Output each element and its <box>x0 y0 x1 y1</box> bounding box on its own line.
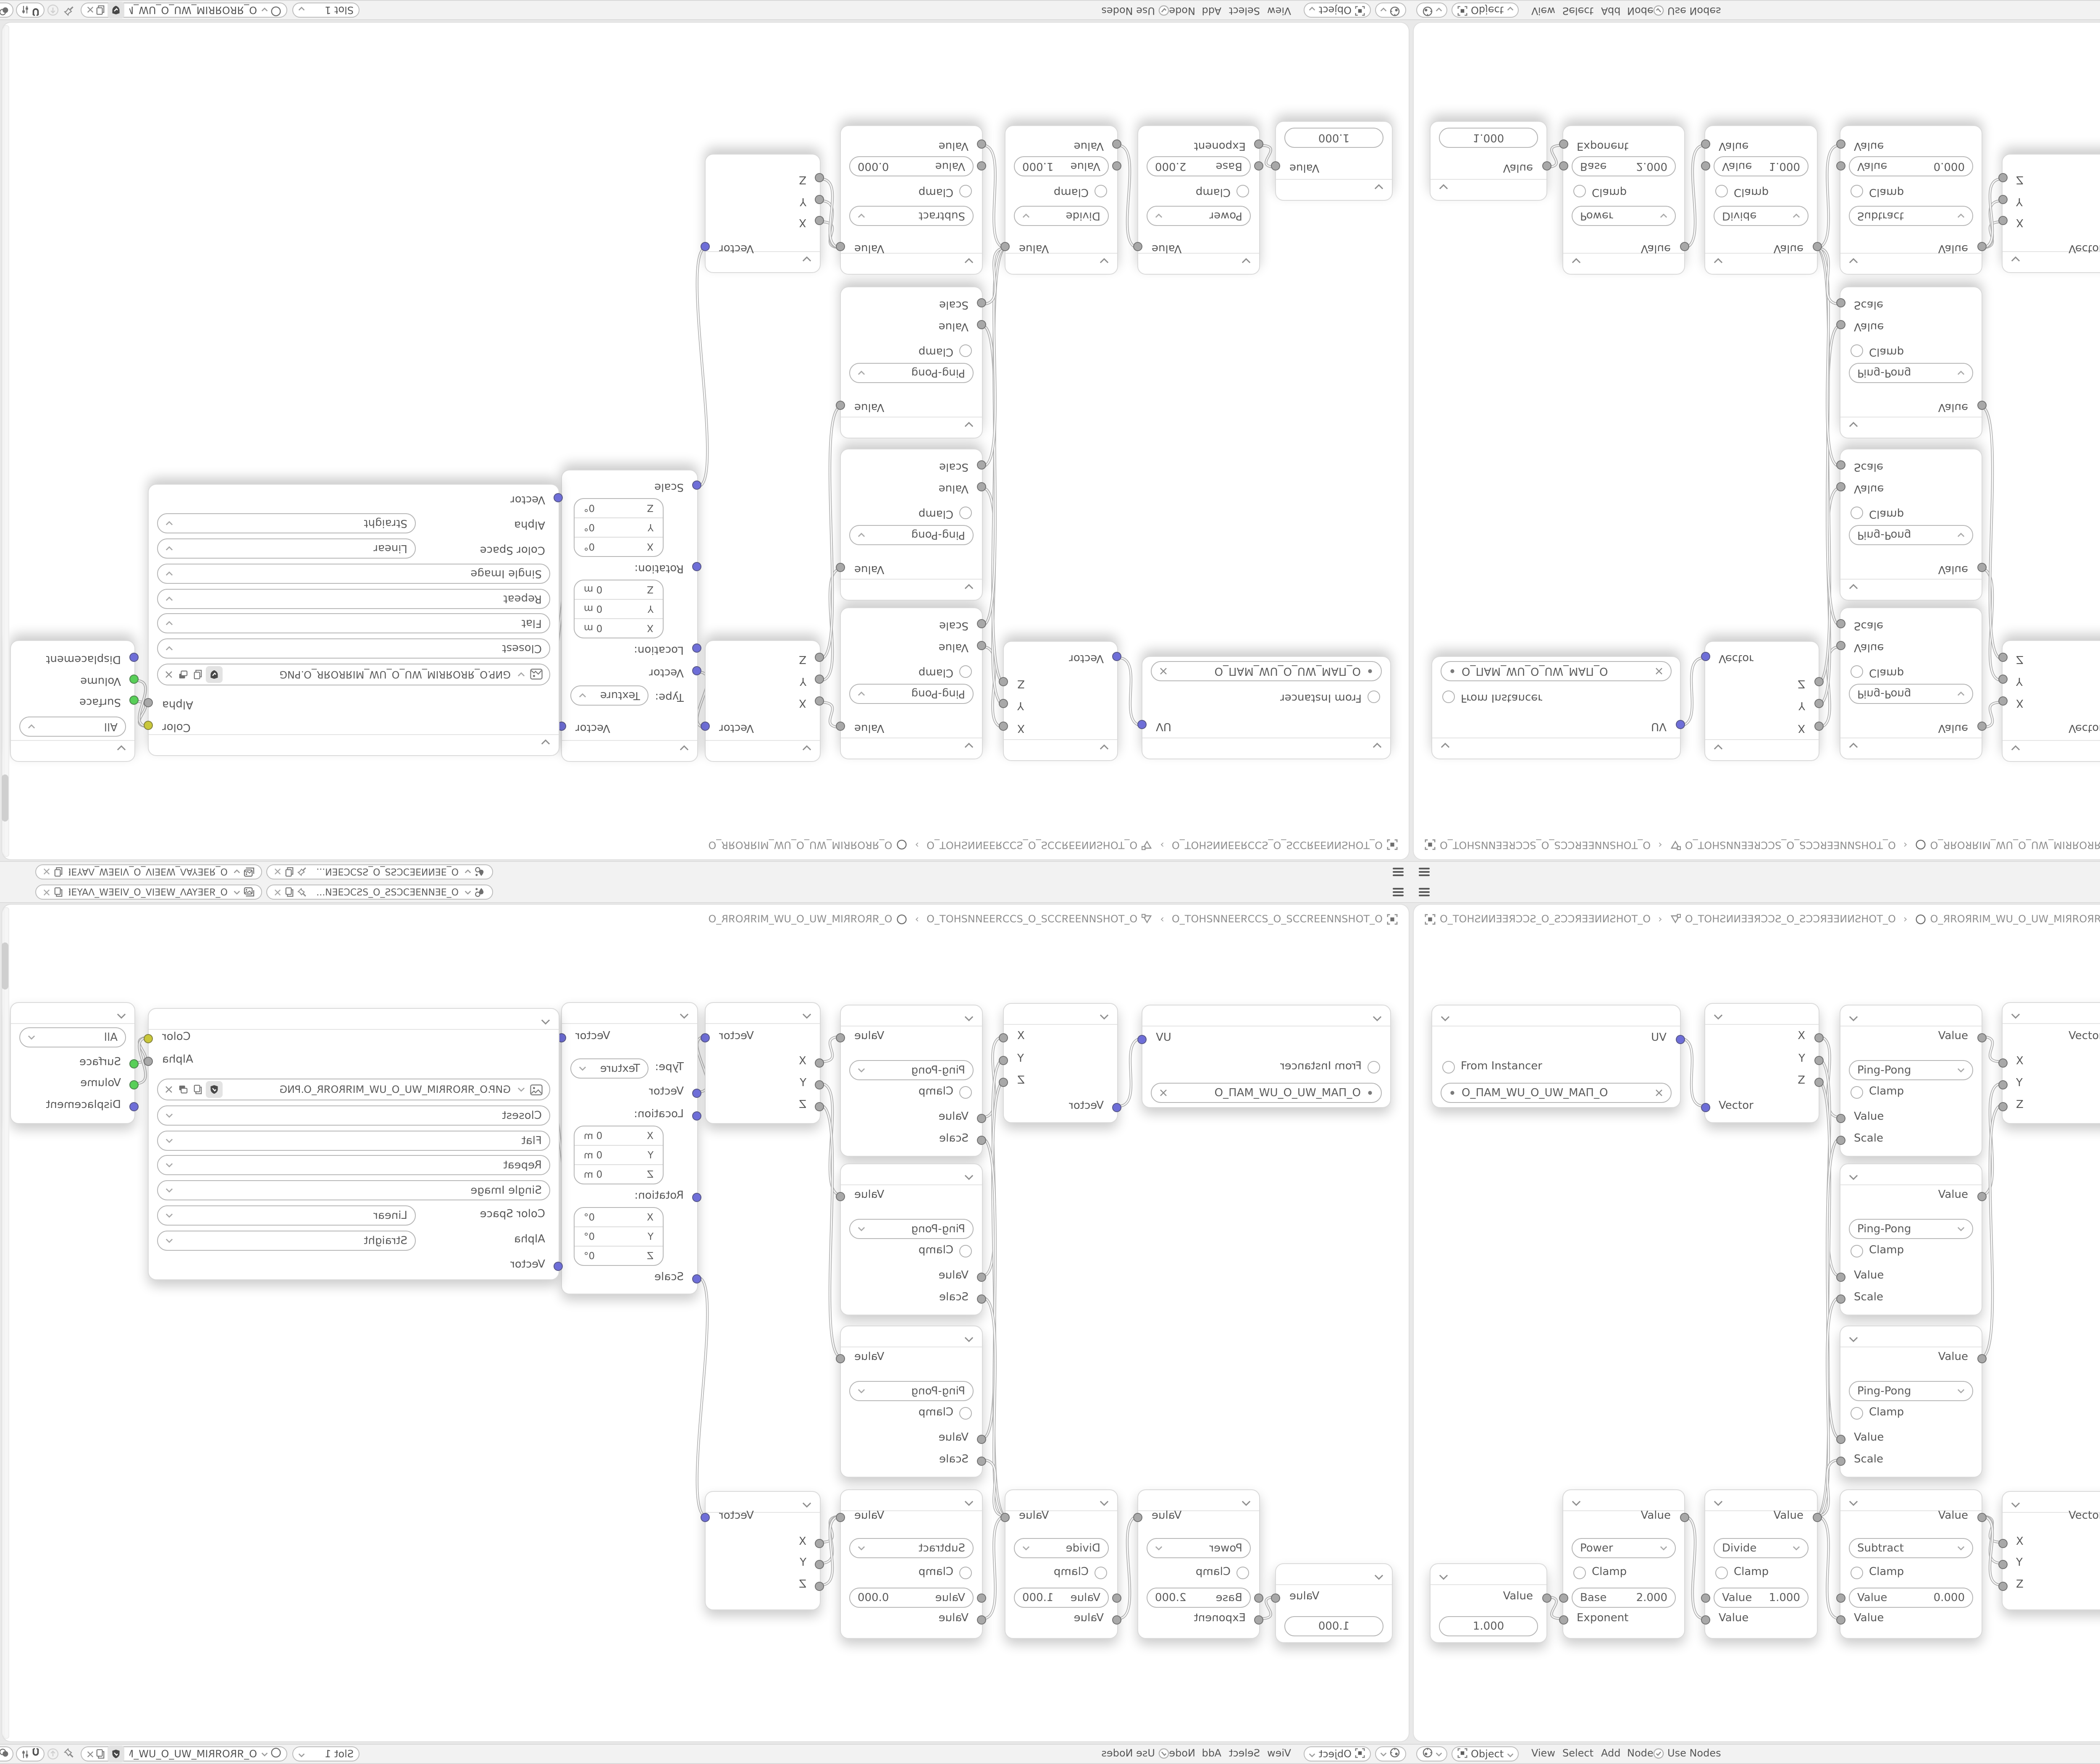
triple-row[interactable]: X0 m <box>575 619 663 638</box>
socket-vector[interactable] <box>701 1033 710 1042</box>
node-header[interactable] <box>1004 739 1117 760</box>
socket-value[interactable] <box>836 1354 845 1363</box>
prop-dropdown[interactable]: Texture <box>570 1058 648 1079</box>
dropdown-ping-pong[interactable]: Ping-Pong <box>1849 1381 1973 1401</box>
socket-y[interactable] <box>815 675 824 684</box>
collapse-chevron-icon[interactable] <box>1714 255 1723 267</box>
uv-map-name-field[interactable]: O_ΠAM_WU_O_UW_MAΠ_O <box>1441 1083 1672 1103</box>
socket-z[interactable] <box>1998 173 2007 183</box>
dropdown-closest[interactable]: Closest <box>157 638 550 659</box>
number-field[interactable]: Base2.000 <box>1147 156 1251 176</box>
collapse-chevron-icon[interactable] <box>1849 418 1858 431</box>
radio-checkbox[interactable] <box>1236 185 1249 197</box>
socket-z[interactable] <box>815 173 824 183</box>
collapse-chevron-icon[interactable] <box>964 1171 974 1184</box>
collapse-chevron-icon[interactable] <box>1572 255 1581 267</box>
menu-select[interactable]: Select <box>1229 5 1260 17</box>
socket-surface[interactable] <box>130 1059 139 1068</box>
dropdown-all[interactable]: All <box>19 1027 126 1047</box>
socket-exponent[interactable] <box>1255 1615 1264 1624</box>
radio-checkbox[interactable] <box>1851 507 1863 519</box>
collapse-chevron-icon[interactable] <box>1849 1171 1858 1184</box>
fake-user-shield-icon[interactable] <box>108 2 124 18</box>
collapse-chevron-icon[interactable] <box>1242 255 1251 267</box>
socket-value[interactable] <box>836 563 845 572</box>
node-header[interactable] <box>2003 740 2100 761</box>
number-field[interactable]: 1.000 <box>1439 128 1538 148</box>
socket-value[interactable] <box>977 1113 987 1123</box>
pin-icon[interactable] <box>64 1748 74 1758</box>
menu-add[interactable]: Add <box>1202 1747 1221 1759</box>
node-header[interactable] <box>562 740 697 761</box>
number-field[interactable]: Value0.000 <box>849 1588 974 1608</box>
socket-value[interactable] <box>977 1272 987 1281</box>
socket-x[interactable] <box>999 1033 1008 1042</box>
radio-checkbox[interactable] <box>1442 1061 1455 1074</box>
socket-value[interactable] <box>1134 1512 1143 1522</box>
dropdown-divide[interactable]: Divide <box>1014 206 1109 226</box>
socket-value[interactable] <box>1977 722 1986 731</box>
socket-value[interactable] <box>1977 1033 1986 1042</box>
prop-dropdown[interactable]: Linear <box>157 1205 416 1226</box>
node-value[interactable]: Value1.000 <box>1430 1563 1547 1643</box>
radio-checkbox[interactable] <box>1095 185 1107 197</box>
node-uv-map[interactable]: UVFrom InstancerO_ΠAM_WU_O_UW_MAΠ_O <box>1431 1005 1681 1108</box>
sidebar-toggle[interactable] <box>2 942 8 990</box>
node-header[interactable] <box>706 740 820 761</box>
socket-value[interactable] <box>1836 641 1845 651</box>
socket-rotation:[interactable] <box>693 1192 702 1202</box>
node-header[interactable] <box>1563 1490 1684 1511</box>
socket-value[interactable] <box>1542 162 1551 171</box>
slot-selector[interactable]: Slot 1 <box>292 3 360 18</box>
menu-view[interactable]: View <box>1531 5 1555 17</box>
socket-base[interactable] <box>1559 1593 1568 1602</box>
socket-y[interactable] <box>1998 1559 2007 1569</box>
node-math-ping-pong-1[interactable]: ValuePing-PongClampValueScale <box>840 1005 983 1157</box>
collapse-chevron-icon[interactable] <box>964 1012 974 1025</box>
collapse-chevron-icon[interactable] <box>1849 580 1858 593</box>
node-math-divide[interactable]: ValueDivideClampValue1.000Value <box>1704 125 1818 275</box>
socket-y[interactable] <box>1998 1080 2007 1089</box>
node-math-ping-pong-3[interactable]: ValuePing-PongClampValueScale <box>840 1326 983 1478</box>
socket-value[interactable] <box>1977 563 1986 572</box>
socket-value[interactable] <box>1836 140 1845 149</box>
pin-icon[interactable] <box>64 6 74 16</box>
use-nodes-checkbox[interactable]: Use Nodes <box>1101 5 1169 17</box>
socket-value[interactable] <box>1836 1615 1845 1624</box>
node-header[interactable] <box>1276 1564 1392 1585</box>
image-datablock-field[interactable]: GИP.O_ЯROЯRIM_WU_O_UW_MIЯROЯR_O.PNG <box>157 664 550 685</box>
node-combine-xyz-2[interactable]: VectorXYZ <box>2002 154 2100 273</box>
socket-z[interactable] <box>1814 1077 1823 1087</box>
socket-y[interactable] <box>1814 1055 1823 1065</box>
collapse-chevron-icon[interactable] <box>1849 1333 1858 1346</box>
copy-icon[interactable] <box>191 1084 205 1095</box>
node-header[interactable] <box>149 734 559 755</box>
socket-x[interactable] <box>1998 216 2007 226</box>
collapse-chevron-icon[interactable] <box>2011 253 2020 265</box>
menu-node[interactable]: Node <box>1627 5 1654 17</box>
node-math-power[interactable]: ValuePowerClampBase2.000Exponent <box>1137 1489 1260 1639</box>
node-header[interactable] <box>149 1009 559 1030</box>
socket-vector[interactable] <box>1701 1102 1710 1112</box>
socket-value[interactable] <box>1113 1593 1122 1602</box>
socket-x[interactable] <box>1998 1058 2007 1067</box>
dropdown-subtract[interactable]: Subtract <box>1849 1538 1973 1558</box>
dropdown-repeat[interactable]: Repeat <box>157 1155 550 1175</box>
node-separate-xyz[interactable]: XYZVector <box>1704 641 1819 761</box>
node-header[interactable] <box>1840 1005 1982 1026</box>
socket-value[interactable] <box>1113 162 1122 171</box>
socket-exponent[interactable] <box>1559 1615 1568 1624</box>
socket-value[interactable] <box>1977 242 1986 252</box>
socket-value[interactable] <box>1836 1272 1845 1281</box>
close-icon[interactable] <box>162 1085 176 1094</box>
collapse-chevron-icon[interactable] <box>1714 1497 1723 1509</box>
node-math-divide[interactable]: ValueDivideClampValue1.000Value <box>1005 1489 1118 1639</box>
collapse-chevron-icon[interactable] <box>1849 739 1858 752</box>
collapse-chevron-icon[interactable] <box>1100 741 1109 753</box>
socket-y[interactable] <box>815 195 824 205</box>
dropdown-power[interactable]: Power <box>1147 206 1251 226</box>
node-mapping[interactable]: VectorType:TextureVectorLocation:X0 mY0 … <box>561 470 698 762</box>
radio-checkbox[interactable] <box>1368 690 1380 703</box>
object-mode-selector[interactable]: Object <box>1304 3 1371 18</box>
node-header[interactable] <box>1840 417 1982 438</box>
up-arrow-icon[interactable] <box>47 1748 59 1760</box>
menu-node[interactable]: Node <box>1169 1747 1195 1759</box>
node-combine-xyz-2[interactable]: VectorXYZ <box>705 1491 821 1610</box>
socket-y[interactable] <box>1814 699 1823 709</box>
socket-scale[interactable] <box>1836 1294 1845 1303</box>
socket-volume[interactable] <box>130 675 139 684</box>
node-combine-xyz-1[interactable]: VectorXYZ <box>2002 640 2100 762</box>
object-mode-selector[interactable]: Object <box>1304 1746 1371 1761</box>
node-material-output[interactable]: AllSurfaceVolumeDisplacement <box>10 640 135 762</box>
dropdown-flat[interactable]: Flat <box>157 1131 550 1151</box>
node-math-ping-pong-3[interactable]: ValuePing-PongClampValueScale <box>1840 286 1982 438</box>
socket-uv[interactable] <box>1138 720 1147 730</box>
collapse-chevron-icon[interactable] <box>1100 1011 1109 1023</box>
node-header[interactable] <box>841 1326 982 1347</box>
dropdown-ping-pong[interactable]: Ping-Pong <box>849 525 974 545</box>
socket-value[interactable] <box>1542 1593 1551 1602</box>
socket-value[interactable] <box>836 1033 845 1042</box>
socket-z[interactable] <box>815 653 824 662</box>
dropdown-ping-pong[interactable]: Ping-Pong <box>849 363 974 383</box>
number-field[interactable]: 1.000 <box>1439 1616 1538 1636</box>
menu-add[interactable]: Add <box>1601 5 1620 17</box>
node-math-ping-pong-3[interactable]: ValuePing-PongClampValueScale <box>840 286 983 438</box>
node-combine-xyz-2[interactable]: VectorXYZ <box>2002 1491 2100 1610</box>
socket-z[interactable] <box>1998 1581 2007 1591</box>
node-combine-xyz-1[interactable]: VectorXYZ <box>705 1002 821 1124</box>
node-header[interactable] <box>841 417 982 438</box>
socket-vector[interactable] <box>1701 652 1710 661</box>
socket-base[interactable] <box>1559 162 1568 171</box>
menu-select[interactable]: Select <box>1229 1747 1260 1759</box>
socket-value[interactable] <box>1113 140 1122 149</box>
collapse-chevron-icon[interactable] <box>1441 1012 1450 1025</box>
collapse-chevron-icon[interactable] <box>1849 255 1858 267</box>
dropdown-repeat[interactable]: Repeat <box>157 589 550 609</box>
image-datablock-field[interactable]: GИP.O_ЯROЯRIM_WU_O_UW_MIЯROЯR_O.PNG <box>157 1079 550 1100</box>
dropdown-ping-pong[interactable]: Ping-Pong <box>1849 363 1973 383</box>
node-separate-xyz[interactable]: XYZVector <box>1704 1003 1819 1123</box>
node-header[interactable] <box>1432 1005 1680 1026</box>
triple-row[interactable]: Z0° <box>575 1246 663 1265</box>
triple-row[interactable]: Y0° <box>575 1226 663 1246</box>
node-header[interactable] <box>841 738 982 759</box>
socket-value[interactable] <box>1001 242 1010 252</box>
dropdown-flat[interactable]: Flat <box>157 613 550 633</box>
socket-z[interactable] <box>1998 653 2007 662</box>
node-value[interactable]: Value1.000 <box>1275 121 1393 201</box>
socket-value[interactable] <box>1680 242 1689 252</box>
socket-location:[interactable] <box>693 1111 702 1120</box>
radio-checkbox[interactable] <box>1095 1567 1107 1579</box>
uv-map-name-field[interactable]: O_ΠAM_WU_O_UW_MAΠ_O <box>1441 661 1672 681</box>
copy-icon[interactable] <box>96 1749 105 1759</box>
socket-z[interactable] <box>815 1581 824 1591</box>
node-header[interactable] <box>1431 1564 1546 1585</box>
radio-checkbox[interactable] <box>1851 1407 1863 1420</box>
slot-selector[interactable]: Slot 1 <box>292 1746 360 1761</box>
collapse-chevron-icon[interactable] <box>1374 1571 1383 1583</box>
collapse-chevron-icon[interactable] <box>1374 181 1383 193</box>
collapse-chevron-icon[interactable] <box>680 1010 689 1022</box>
dropdown-subtract[interactable]: Subtract <box>1849 206 1973 226</box>
collapse-chevron-icon[interactable] <box>541 1016 550 1028</box>
socket-volume[interactable] <box>130 1080 139 1089</box>
number-field[interactable]: 1.000 <box>1284 1616 1383 1636</box>
radio-checkbox[interactable] <box>959 1407 972 1420</box>
triple-row[interactable]: Y0° <box>575 518 663 538</box>
node-math-ping-pong-1[interactable]: ValuePing-PongClampValueScale <box>840 607 983 759</box>
number-field[interactable]: Value1.000 <box>1014 1588 1109 1608</box>
socket-value[interactable] <box>1836 1434 1845 1444</box>
node-math-subtract[interactable]: ValueSubtractClampValue0.000Value <box>1840 125 1982 275</box>
editor-type-button[interactable] <box>1375 3 1406 18</box>
socket-value[interactable] <box>1701 1593 1710 1602</box>
node-header[interactable] <box>1138 253 1259 274</box>
socket-value[interactable] <box>977 641 987 651</box>
triple-row[interactable]: Y0 m <box>575 1145 663 1164</box>
unpack-icon[interactable] <box>176 669 191 680</box>
uv-map-name-field[interactable]: O_ΠAM_WU_O_UW_MAΠ_O <box>1151 1083 1382 1103</box>
socket-value[interactable] <box>1836 320 1845 330</box>
close-icon[interactable] <box>1159 1089 1168 1097</box>
socket-value[interactable] <box>1836 162 1845 171</box>
number-field[interactable]: Base2.000 <box>1147 1588 1251 1608</box>
socket-value[interactable] <box>1977 401 1986 410</box>
socket-value[interactable] <box>1812 242 1822 252</box>
socket-x[interactable] <box>815 697 824 706</box>
socket-value[interactable] <box>1701 1615 1710 1624</box>
close-icon[interactable] <box>87 1750 94 1758</box>
socket-scale[interactable] <box>1836 299 1845 308</box>
radio-checkbox[interactable] <box>1573 185 1586 197</box>
dropdown-closest[interactable]: Closest <box>157 1105 550 1126</box>
dropdown-all[interactable]: All <box>19 717 126 737</box>
radio-checkbox[interactable] <box>959 1567 972 1579</box>
socket-rotation:[interactable] <box>693 562 702 572</box>
node-math-subtract[interactable]: ValueSubtractClampValue0.000Value <box>840 125 983 275</box>
radio-checkbox[interactable] <box>959 507 972 519</box>
node-math-ping-pong-3[interactable]: ValuePing-PongClampValueScale <box>1840 1326 1982 1478</box>
number-field[interactable]: Base2.000 <box>1572 1588 1676 1608</box>
overlays-toggle[interactable] <box>0 3 13 18</box>
socket-y[interactable] <box>815 1559 824 1569</box>
socket-exponent[interactable] <box>1559 140 1568 149</box>
socket-vector[interactable] <box>1113 652 1122 661</box>
radio-checkbox[interactable] <box>1851 1086 1863 1099</box>
node-combine-xyz-1[interactable]: VectorXYZ <box>2002 1002 2100 1124</box>
vector-triple-field[interactable]: X0°Y0°Z0° <box>574 498 664 557</box>
node-header[interactable] <box>1705 253 1817 274</box>
socket-z[interactable] <box>999 1077 1008 1087</box>
number-field[interactable]: Base2.000 <box>1572 156 1676 176</box>
collapse-chevron-icon[interactable] <box>1714 1011 1723 1023</box>
close-icon[interactable] <box>1159 667 1168 675</box>
node-math-ping-pong-2[interactable]: ValuePing-PongClampValueScale <box>840 1163 983 1315</box>
triple-row[interactable]: Z0° <box>575 499 663 518</box>
socket-x[interactable] <box>999 722 1008 731</box>
socket-value[interactable] <box>836 242 845 252</box>
uv-map-name-field[interactable]: O_ΠAM_WU_O_UW_MAΠ_O <box>1151 661 1382 681</box>
node-header[interactable] <box>11 740 134 761</box>
menu-select[interactable]: Select <box>1562 1747 1593 1759</box>
socket-value[interactable] <box>1836 1593 1845 1602</box>
collapse-chevron-icon[interactable] <box>2011 1499 2020 1511</box>
collapse-chevron-icon[interactable] <box>1100 1497 1109 1509</box>
socket-x[interactable] <box>1814 1033 1823 1042</box>
socket-value[interactable] <box>1977 1354 1986 1363</box>
vector-triple-field[interactable]: X0 mY0 mZ0 m <box>574 1126 664 1184</box>
node-math-ping-pong-1[interactable]: ValuePing-PongClampValueScale <box>1840 607 1982 759</box>
socket-vector[interactable] <box>701 1512 710 1522</box>
node-math-subtract[interactable]: ValueSubtractClampValue0.000Value <box>1840 1489 1982 1639</box>
socket-scale[interactable] <box>977 619 987 629</box>
socket-vector[interactable] <box>693 667 702 676</box>
node-math-power[interactable]: ValuePowerClampBase2.000Exponent <box>1562 125 1685 275</box>
socket-scale[interactable] <box>977 1135 987 1144</box>
node-header[interactable] <box>11 1003 134 1024</box>
menu-select[interactable]: Select <box>1562 5 1593 17</box>
socket-value[interactable] <box>977 1434 987 1444</box>
close-icon[interactable] <box>162 670 176 679</box>
node-header[interactable] <box>1142 738 1390 759</box>
prop-dropdown[interactable]: Linear <box>157 538 416 559</box>
socket-y[interactable] <box>999 1055 1008 1065</box>
collapse-chevron-icon[interactable] <box>964 1333 974 1346</box>
socket-surface[interactable] <box>130 696 139 705</box>
node-mapping[interactable]: VectorType:TextureVectorLocation:X0 mY0 … <box>561 1002 698 1294</box>
collapse-chevron-icon[interactable] <box>964 1497 974 1509</box>
node-header[interactable] <box>1705 739 1819 760</box>
socket-vector[interactable] <box>701 722 710 731</box>
socket-scale[interactable] <box>977 299 987 308</box>
socket-alpha[interactable] <box>144 698 153 708</box>
socket-base[interactable] <box>1255 162 1264 171</box>
radio-checkbox[interactable] <box>1851 1245 1863 1257</box>
dropdown-ping-pong[interactable]: Ping-Pong <box>849 684 974 704</box>
node-header[interactable] <box>1138 1490 1259 1511</box>
collapse-chevron-icon[interactable] <box>1242 1497 1251 1509</box>
collapse-chevron-icon[interactable] <box>1373 739 1382 752</box>
node-separate-xyz[interactable]: XYZVector <box>1003 641 1118 761</box>
radio-checkbox[interactable] <box>1236 1567 1249 1579</box>
socket-value[interactable] <box>1836 483 1845 492</box>
menu-node[interactable]: Node <box>1169 5 1195 17</box>
menu-add[interactable]: Add <box>1601 1747 1620 1759</box>
dropdown-ping-pong[interactable]: Ping-Pong <box>849 1381 974 1401</box>
socket-z[interactable] <box>1998 1102 2007 1111</box>
radio-checkbox[interactable] <box>959 665 972 678</box>
socket-scale[interactable] <box>1836 1456 1845 1465</box>
node-header[interactable] <box>1005 253 1117 274</box>
socket-exponent[interactable] <box>1255 140 1264 149</box>
node-uv-map[interactable]: UVFrom InstancerO_ΠAM_WU_O_UW_MAΠ_O <box>1142 1005 1391 1108</box>
socket-value[interactable] <box>1977 1512 1986 1522</box>
socket-color[interactable] <box>144 1034 153 1043</box>
collapse-chevron-icon[interactable] <box>117 742 126 754</box>
triple-row[interactable]: X0 m <box>575 1126 663 1145</box>
socket-value[interactable] <box>836 1192 845 1201</box>
editor-type-button[interactable] <box>1416 1746 1447 1761</box>
node-header[interactable] <box>841 1490 982 1511</box>
triple-row[interactable]: X0° <box>575 538 663 556</box>
dropdown-divide[interactable]: Divide <box>1714 206 1809 226</box>
snapping-controls[interactable] <box>16 1746 45 1761</box>
socket-z[interactable] <box>815 1102 824 1111</box>
node-header[interactable] <box>1142 1005 1390 1026</box>
copy-icon[interactable] <box>191 669 205 680</box>
socket-x[interactable] <box>1998 1538 2007 1548</box>
prop-dropdown[interactable]: Straight <box>157 1231 416 1251</box>
node-header[interactable] <box>1431 179 1546 200</box>
socket-value[interactable] <box>977 140 987 149</box>
collapse-chevron-icon[interactable] <box>802 253 811 265</box>
node-math-divide[interactable]: ValueDivideClampValue1.000Value <box>1005 125 1118 275</box>
dropdown-divide[interactable]: Divide <box>1014 1538 1109 1558</box>
menu-view[interactable]: View <box>1267 1747 1291 1759</box>
socket-value[interactable] <box>836 722 845 731</box>
dropdown-ping-pong[interactable]: Ping-Pong <box>1849 1060 1973 1080</box>
dropdown-single-image[interactable]: Single Image <box>157 1180 550 1200</box>
close-icon[interactable] <box>1655 667 1663 675</box>
radio-checkbox[interactable] <box>959 1086 972 1099</box>
socket-vector[interactable] <box>701 242 710 252</box>
socket-color[interactable] <box>144 721 153 730</box>
copy-icon[interactable] <box>96 5 105 15</box>
node-header[interactable] <box>841 1164 982 1185</box>
node-uv-map[interactable]: UVFrom InstancerO_ΠAM_WU_O_UW_MAΠ_O <box>1142 656 1391 759</box>
triple-row[interactable]: X0° <box>575 1208 663 1226</box>
radio-checkbox[interactable] <box>959 185 972 197</box>
socket-x[interactable] <box>1814 722 1823 731</box>
node-math-ping-pong-2[interactable]: ValuePing-PongClampValueScale <box>1840 1163 1982 1315</box>
node-math-power[interactable]: ValuePowerClampBase2.000Exponent <box>1562 1489 1685 1639</box>
material-selector[interactable]: O_ЯROЯRIM_WU_O_UW_MIЯROЯR_O <box>81 3 287 18</box>
node-header[interactable] <box>1840 738 1982 759</box>
collapse-chevron-icon[interactable] <box>964 739 974 752</box>
node-math-ping-pong-1[interactable]: ValuePing-PongClampValueScale <box>1840 1005 1982 1157</box>
fake-user-shield-icon[interactable] <box>108 1746 124 1762</box>
node-value[interactable]: Value1.000 <box>1430 121 1547 201</box>
node-math-ping-pong-2[interactable]: ValuePing-PongClampValueScale <box>1840 449 1982 601</box>
